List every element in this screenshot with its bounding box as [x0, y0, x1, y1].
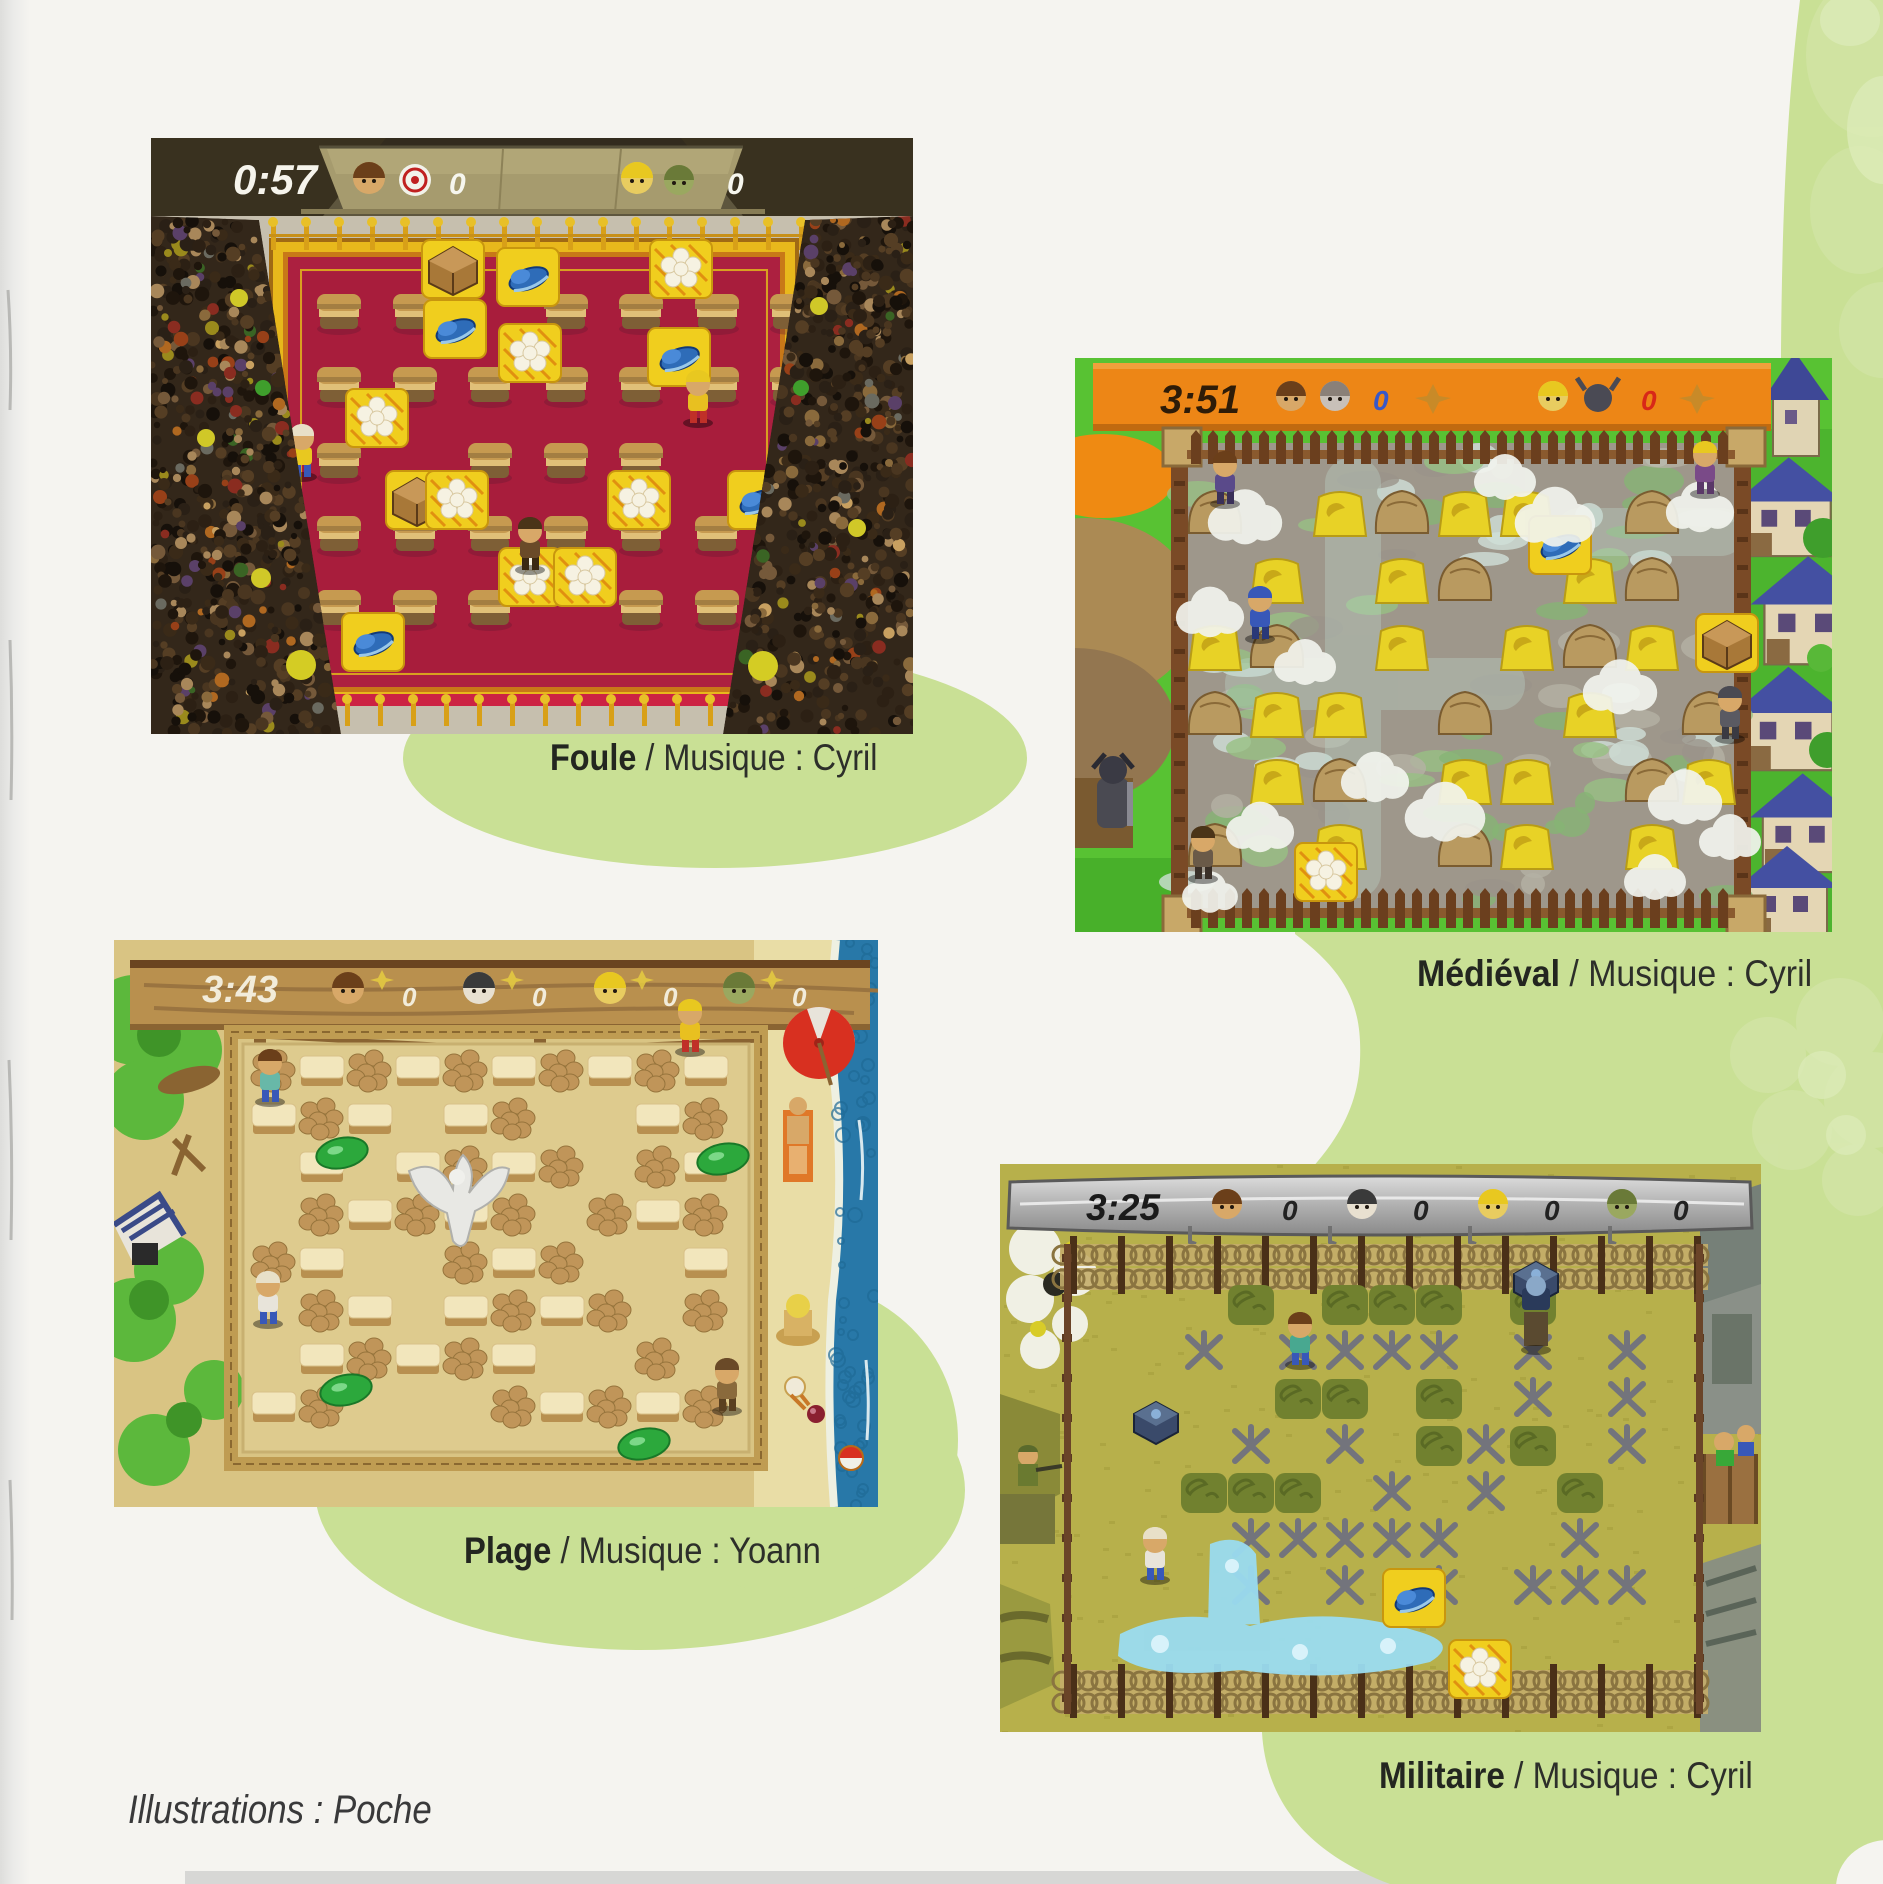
- svg-text:3:43: 3:43: [202, 969, 278, 1011]
- svg-text:0: 0: [1544, 1195, 1560, 1226]
- svg-text:0: 0: [402, 982, 417, 1012]
- svg-text:0: 0: [1641, 385, 1657, 416]
- svg-text:0: 0: [792, 982, 807, 1012]
- svg-text:0: 0: [1673, 1195, 1689, 1226]
- svg-text:0: 0: [1413, 1195, 1429, 1226]
- svg-text:0: 0: [532, 982, 547, 1012]
- svg-text:0: 0: [663, 982, 678, 1012]
- svg-text:0: 0: [449, 168, 466, 201]
- svg-text:3:25: 3:25: [1086, 1187, 1161, 1228]
- svg-text:0: 0: [1373, 385, 1389, 416]
- svg-text:0:57: 0:57: [233, 156, 319, 203]
- svg-text:0: 0: [727, 168, 744, 201]
- svg-text:3:51: 3:51: [1160, 378, 1240, 422]
- svg-text:0: 0: [1282, 1195, 1298, 1226]
